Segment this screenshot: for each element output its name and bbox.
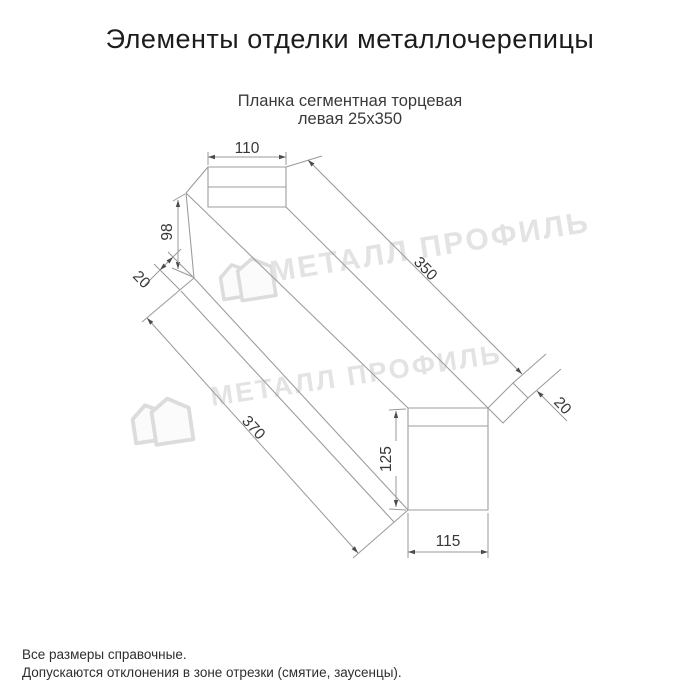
dim-far-height-label: 125 — [378, 446, 395, 472]
dim-far-width-label: 115 — [436, 533, 461, 550]
dim-top-width-label: 110 — [235, 140, 260, 157]
dim-far-fold-label: 20 — [550, 394, 574, 418]
dim-side-height-label: 98 — [159, 223, 176, 240]
footer-notes: Все размеры справочные. Допускаются откл… — [22, 646, 402, 682]
watermark-logo-icon — [218, 256, 276, 304]
dim-near-fold-label: 20 — [129, 268, 153, 292]
watermark-logo-icon — [130, 396, 193, 448]
footer-note-1: Все размеры справочные. — [22, 646, 402, 664]
drawing-page: { "window": { "title": "Элементы отделки… — [0, 0, 700, 700]
technical-drawing: МЕТАЛЛ ПРОФИЛЬ МЕТАЛЛ ПРОФИЛЬ — [0, 0, 700, 700]
footer-note-2: Допускаются отклонения в зоне отрезки (с… — [22, 664, 402, 682]
dimension-lines — [145, 152, 567, 558]
dim-total-length-label: 370 — [238, 413, 268, 444]
dimension-labels: 110 98 20 350 370 20 125 115 — [129, 140, 575, 550]
watermark-text: МЕТАЛЛ ПРОФИЛЬ — [208, 339, 504, 412]
